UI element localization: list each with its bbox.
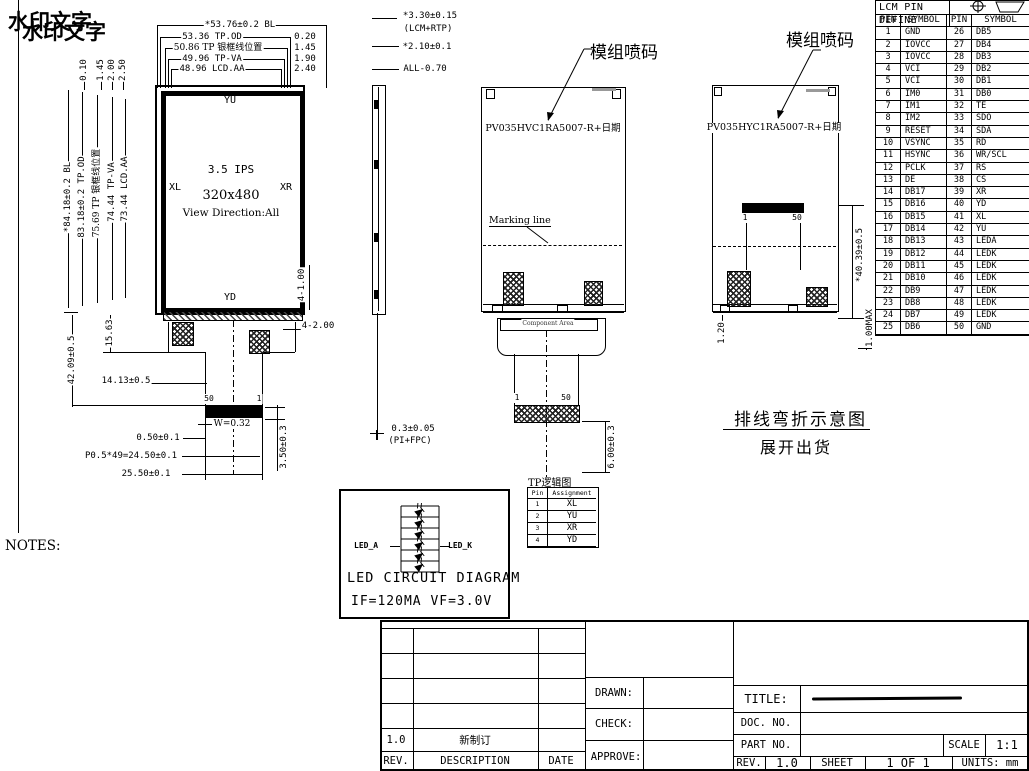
pin-number: 50 [947, 322, 972, 334]
pin-symbol: DB6 [901, 322, 947, 334]
pin-symbol: DB13 [901, 236, 947, 248]
tp-table-body: 1 XL 2 YU 3 XR 4 YD [528, 499, 598, 547]
drawing-line [582, 472, 610, 473]
pin-number: 48 [947, 298, 972, 310]
offset-250: 2.50 [118, 58, 128, 82]
inkjet-code-1: PV035HVC1RA5007-R+日期 [484, 124, 621, 134]
fpc-connector-back1 [514, 405, 580, 423]
tp-assignment-header: Assignment [548, 488, 596, 499]
pin-symbol: DB5 [972, 27, 1029, 39]
pin-number: 19 [876, 249, 901, 261]
drawing-line [205, 418, 206, 480]
dim-lcm-thickness: *2.10±0.1 [402, 42, 453, 52]
pin-table-row: 17 DB14 42 YU [876, 224, 1029, 236]
pin50-label: 50 [203, 394, 215, 404]
drawn-label: DRAWN: [595, 687, 633, 699]
sheet-value: 1 OF 1 [886, 756, 929, 770]
callout-inkjet-1: 模组喷码 [590, 38, 658, 63]
pin-number: 27 [947, 40, 972, 52]
pin-number: 33 [947, 113, 972, 125]
drawing-line [233, 320, 234, 475]
pin-symbol: DB12 [901, 249, 947, 261]
pin-symbol: RESET [901, 126, 947, 138]
pin-symbol: DB14 [901, 224, 947, 236]
drawing-line [284, 59, 285, 88]
pin-number: 16 [876, 212, 901, 224]
pin-table-row: 7 IM1 32 TE [876, 101, 1029, 113]
scale-value: 1:1 [996, 738, 1018, 752]
pin-number: 3 [876, 52, 901, 64]
rev-value-row: 1.0 [387, 734, 406, 746]
pin-symbol: RD [972, 138, 1029, 150]
pin-table-row: 8 IM2 33 SDO [876, 113, 1029, 125]
offset-145: 1.45 [293, 43, 317, 53]
tp-table-row: 1 XL [528, 499, 598, 511]
drawing-line [183, 438, 205, 439]
dim-fpc-thickness: 0.3±0.05 [390, 424, 435, 434]
pin-table-row: 10 VSYNC 35 RD [876, 138, 1029, 150]
drawing-line [283, 329, 301, 330]
pin-symbol: HSYNC [901, 150, 947, 162]
pin-symbol: IM0 [901, 89, 947, 101]
dim-4209: 42.09±0.5 [67, 335, 77, 386]
drawing-line [838, 318, 864, 319]
pin-number: 47 [947, 286, 972, 298]
sheet-label: SHEET [821, 757, 853, 769]
pin-number: 21 [876, 273, 901, 285]
pin-symbol: LEDK [972, 273, 1029, 285]
pin-table-row: 16 DB15 41 XL [876, 212, 1029, 224]
pin-number: 17 [876, 224, 901, 236]
pin-number: 22 [876, 286, 901, 298]
pin-number: 30 [947, 76, 972, 88]
pin-symbol: SDA [972, 126, 1029, 138]
lcm-pin-define-table: LCM PIN DEFINE PIN SYMBOL PIN SYMBOL 1 G… [875, 0, 1029, 336]
pin-table-grid: PIN SYMBOL PIN SYMBOL 1 GND 26 DB5 2 IOV… [876, 15, 1029, 335]
fpc-component-block [172, 322, 194, 346]
pin-number: 38 [947, 175, 972, 187]
drawing-line [372, 18, 397, 19]
dim-total-thickness: *3.30±0.15 [402, 11, 458, 21]
pin-symbol: GND [972, 322, 1029, 334]
dim-1413: 14.13±0.5 [101, 376, 152, 386]
pin-number: 10 [876, 138, 901, 150]
pin-number: 5 [876, 76, 901, 88]
led-anode-label: LED_A [354, 541, 378, 550]
drawing-line [262, 418, 263, 480]
pin-number: 37 [947, 163, 972, 175]
fine-print-mark [806, 89, 830, 92]
pin-number: 14 [876, 187, 901, 199]
pin-symbol: LEDK [972, 286, 1029, 298]
dim-2550: 25.50±0.1 [121, 469, 172, 479]
side-view-profile [372, 85, 386, 315]
pin-table-row: 20 DB11 45 LEDK [876, 261, 1029, 273]
drawing-line [370, 433, 384, 434]
pin-symbol: GND [901, 27, 947, 39]
pin-symbol: DB10 [901, 273, 947, 285]
note-item [5, 656, 350, 676]
drawing-line [605, 421, 606, 472]
strip-pad [788, 305, 798, 313]
side-notch [374, 100, 378, 109]
dim-total-thickness-note: (LCM+RTP) [403, 24, 454, 34]
drawing-line [309, 265, 310, 310]
pin1-label: 1 [256, 394, 263, 404]
drawing-line [160, 37, 161, 88]
pin-number: 4 [876, 64, 901, 76]
pin-table-row: 3 IOVCC 28 DB3 [876, 52, 1029, 64]
tp-pin-header: Pin [528, 488, 548, 499]
pin-symbol: LEDK [972, 261, 1029, 273]
pin-symbol: TE [972, 101, 1029, 113]
dim-fpc-thickness-note: (PI+FPC) [387, 436, 432, 446]
fold-note-title: 排线弯折示意图 [734, 405, 867, 430]
pin-number: 1 [876, 27, 901, 39]
drawing-line [168, 59, 169, 88]
fine-print-mark [592, 88, 616, 91]
pin-table-row: 1 GND 26 DB5 [876, 27, 1029, 39]
dim-pin-width: W=0.32 [213, 419, 252, 429]
pin-symbol: VCI [901, 76, 947, 88]
pin-table-row: 5 VCI 30 DB1 [876, 76, 1029, 88]
pin-number: 44 [947, 249, 972, 261]
pin-symbol: IM2 [901, 113, 947, 125]
drawing-line [326, 25, 327, 88]
pin-number: 20 [876, 261, 901, 273]
doc-no-label: DOC. NO. [741, 717, 792, 729]
dim-lcdaa-height: 73.44 LCD.AA [120, 155, 130, 222]
drawing-line [372, 69, 399, 70]
pin-symbol: XL [972, 212, 1029, 224]
note-item [5, 636, 350, 656]
drawing-line [372, 46, 399, 47]
description-col-header: DESCRIPTION [440, 755, 510, 767]
pin-number: 25 [876, 322, 901, 334]
pin-number: 28 [947, 52, 972, 64]
pin-symbol: DB7 [901, 310, 947, 322]
pin-table-row: 12 PCLK 37 RS [876, 163, 1029, 175]
pin-table-row: 25 DB6 50 GND [876, 322, 1029, 334]
pin-symbol: SDO [972, 113, 1029, 125]
fpc-component-block [249, 330, 270, 354]
offset-010: 0.10 [79, 58, 89, 82]
date-col-header: DATE [548, 755, 573, 767]
units-label: UNITS: mm [962, 757, 1019, 769]
check-label: CHECK: [595, 718, 633, 730]
touch-label-xr: XR [279, 183, 293, 193]
fold-note-subtitle: 展开出货 [760, 434, 832, 458]
pin-table-row: 22 DB9 47 LEDK [876, 286, 1029, 298]
drawing-line [838, 205, 864, 206]
pin-symbol: DB16 [901, 199, 947, 211]
dim-tpod-height: 83.18±0.2 TP.OD [77, 155, 87, 238]
dim-bl-height: *84.18±0.2 BL [63, 161, 73, 233]
tp-pin-number: 3 [528, 523, 548, 535]
rev-value: 1.0 [776, 756, 798, 770]
pin-symbol: RS [972, 163, 1029, 175]
tp-assignment: YU [548, 511, 596, 523]
offset-145b: 1.45 [96, 58, 106, 82]
pin-table-row: 11 HSYNC 36 WR/SCL [876, 150, 1029, 162]
led-diagram-title: LED CIRCUIT DIAGRAM [347, 570, 520, 586]
touch-label-yd: YD [223, 293, 237, 303]
marking-line-label: Marking line [489, 215, 551, 227]
pin-number: 15 [876, 199, 901, 211]
dim-4039: *40.39±0.5 [855, 227, 865, 283]
pin-number: 24 [876, 310, 901, 322]
drawing-line [290, 37, 291, 88]
pin-number: 49 [947, 310, 972, 322]
tp-table-row: 3 XR [528, 523, 598, 535]
dim-tpod-width: 53.36 TP.OD [181, 32, 243, 42]
dim-600: 6.00±0.3 [607, 424, 617, 469]
offset-200: 2.00 [107, 58, 117, 82]
pin-number: 2 [876, 40, 901, 52]
offset-240: 2.40 [293, 64, 317, 74]
pin50-label: 50 [560, 393, 572, 403]
pin-table-row: 15 DB16 40 YD [876, 199, 1029, 211]
pin-number: 26 [947, 27, 972, 39]
touch-label-xl: XL [168, 183, 182, 193]
offset-190: 1.90 [293, 54, 317, 64]
tp-assignment: XR [548, 523, 596, 535]
corner-tab [486, 89, 495, 99]
dim-120: 1.20 [717, 321, 727, 345]
pin-number: 35 [947, 138, 972, 150]
fpc-fold-block [727, 271, 751, 307]
drawing-line [265, 407, 285, 408]
tp-assignment: YD [548, 535, 596, 547]
pin-symbol: VCI [901, 64, 947, 76]
engineering-drawing-sheet: { "watermark": {"line1": "水印文字", "line2"… [0, 0, 1029, 771]
drawing-line [265, 419, 285, 420]
pin-number: 46 [947, 273, 972, 285]
corner-tab [714, 87, 722, 96]
pin-symbol: IM1 [901, 101, 947, 113]
pin-symbol: YU [972, 224, 1029, 236]
part-no-label: PART NO. [741, 739, 792, 751]
fpc-fold-block [503, 272, 524, 306]
pin-table-row: 13 DE 38 CS [876, 175, 1029, 187]
side-notch [374, 233, 378, 242]
notes-list [5, 556, 350, 736]
pin-number: 23 [876, 298, 901, 310]
pin-table-row: 19 DB12 44 LEDK [876, 249, 1029, 261]
drawing-line [377, 313, 378, 433]
rev-label: REV. [736, 757, 761, 769]
pin-number: 43 [947, 236, 972, 248]
pin-symbol: DB17 [901, 187, 947, 199]
drawing-line [64, 312, 78, 313]
pin-symbol: LEDK [972, 249, 1029, 261]
drawing-line [18, 0, 19, 533]
pin-symbol: DB3 [972, 52, 1029, 64]
drawing-line [858, 348, 872, 349]
pin-number: 11 [876, 150, 901, 162]
scale-label: SCALE [948, 739, 980, 751]
drawing-line [713, 312, 837, 313]
drawing-line [157, 25, 158, 88]
callout-inkjet-2: 模组喷码 [786, 26, 854, 51]
pin-table-row: 23 DB8 48 LEDK [876, 298, 1029, 310]
pin-number: 45 [947, 261, 972, 273]
offset-020: 0.20 [293, 32, 317, 42]
dim-holes-vertical: 4-1.00 [297, 268, 307, 303]
drawing-line [165, 48, 166, 88]
note-item [5, 696, 350, 716]
rev-description-row: 新制订 [459, 733, 491, 748]
dim-350: 3.50±0.3 [279, 424, 289, 469]
drawing-line [168, 322, 169, 352]
strip-pad [557, 305, 568, 313]
pin-number: 6 [876, 89, 901, 101]
pin-number: 39 [947, 187, 972, 199]
drawing-line [852, 205, 853, 318]
dim-lcdaa-width: 48.96 LCD.AA [178, 64, 245, 74]
pin-number: 12 [876, 163, 901, 175]
pin-symbol: DB1 [972, 76, 1029, 88]
pin-table-row: 2 IOVCC 27 DB4 [876, 40, 1029, 52]
tp-pin-number: 1 [528, 499, 548, 511]
pin-number: 40 [947, 199, 972, 211]
projection-symbol-icon [968, 1, 1028, 14]
pin-number: 34 [947, 126, 972, 138]
pin-symbol: DB4 [972, 40, 1029, 52]
pin-number: 32 [947, 101, 972, 113]
pin-number: 18 [876, 236, 901, 248]
notes-title: NOTES: [5, 538, 61, 554]
dim-100max: 1.00MAX [865, 308, 875, 348]
drawing-line [150, 383, 207, 384]
pin-number: 42 [947, 224, 972, 236]
pin-symbol: WR/SCL [972, 150, 1029, 162]
pin-table-body: 1 GND 26 DB5 2 IOVCC 27 DB4 3 IOVCC 28 D… [876, 27, 1029, 334]
pin-col-header: PIN [947, 15, 972, 27]
rev-col-header: REV. [383, 755, 408, 767]
tp-table-header: Pin Assignment [528, 488, 598, 499]
touch-label-yu: YU [223, 96, 237, 106]
pin-symbol: LEDK [972, 298, 1029, 310]
tp-table-row: 4 YD [528, 535, 598, 547]
pin-number: 41 [947, 212, 972, 224]
dim-tpva-height: 74.44 TP-VA [107, 161, 117, 223]
tp-logic-table: Pin Assignment 1 XL 2 YU 3 XR 4 YD [527, 487, 599, 548]
dim-1563: 15.63 [105, 318, 115, 347]
tp-pin-number: 2 [528, 511, 548, 523]
pin-symbol: DB15 [901, 212, 947, 224]
panel-size-label: 3.5 IPS [207, 165, 255, 175]
pin-symbol: LEDK [972, 310, 1029, 322]
pin-table-row: 18 DB13 43 LEDA [876, 236, 1029, 248]
pin-table-row: 21 DB10 46 LEDK [876, 273, 1029, 285]
pin1-label: 1 [742, 213, 749, 223]
note-item [5, 576, 350, 596]
pin-number: 13 [876, 175, 901, 187]
note-item [5, 556, 350, 576]
note-item [5, 716, 350, 736]
tp-table-row: 2 YU [528, 511, 598, 523]
drawing-line [168, 352, 205, 353]
drawing-line [578, 354, 579, 405]
pin-symbol: XR [972, 187, 1029, 199]
drawing-line [182, 474, 262, 475]
pin-symbol: PCLK [901, 163, 947, 175]
note-item [5, 596, 350, 616]
drawing-line [287, 48, 288, 88]
pin50-label: 50 [791, 213, 803, 223]
fpc-connector-back2 [742, 203, 804, 213]
pin-symbol: DB8 [901, 298, 947, 310]
dim-all-thickness: ALL-0.70 [402, 64, 447, 74]
pin-table-row: 9 RESET 34 SDA [876, 126, 1029, 138]
tp-pin-number: 4 [528, 535, 548, 547]
side-notch [374, 160, 378, 169]
pin-table-title: LCM PIN DEFINE [876, 1, 950, 27]
pin-number: 29 [947, 64, 972, 76]
pin-number: 31 [947, 89, 972, 101]
dim-frameline-height: 75.69 TP 银框线位置 [92, 148, 102, 239]
pin-table-row: 14 DB17 39 XR [876, 187, 1029, 199]
dim-frameline-width: 50.86 TP 银框线位置 [173, 43, 264, 53]
pin-symbol: CS [972, 175, 1029, 187]
pin-symbol: DB11 [901, 261, 947, 273]
approve-label: APPROVE: [591, 751, 642, 763]
fpc-connector-front [205, 405, 263, 418]
view-direction-label: View Direction:All [182, 208, 281, 218]
drawing-line [72, 405, 205, 406]
pin-number: 7 [876, 101, 901, 113]
pin-number: 9 [876, 126, 901, 138]
pin-symbol: DB9 [901, 286, 947, 298]
pin-symbol: IOVCC [901, 52, 947, 64]
panel-resolution-label: 320x480 [202, 191, 261, 201]
pin-symbol: DB0 [972, 89, 1029, 101]
dim-050: 0.50±0.1 [135, 433, 180, 443]
fpc-fold-block [584, 281, 603, 306]
pin-table-row: 6 IM0 31 DB0 [876, 89, 1029, 101]
backlight-hatch-strip [163, 311, 303, 321]
pin-symbol: IOVCC [901, 40, 947, 52]
led-cathode-label: LED_K [448, 541, 472, 550]
title-label: TITLE: [744, 692, 787, 706]
watermark-text: 水印文字 [22, 16, 106, 46]
component-area-label: Component Area [521, 319, 574, 329]
strip-pad [720, 305, 730, 313]
side-notch [374, 290, 378, 299]
dim-pitch: P0.5*49=24.50±0.1 [84, 451, 178, 461]
drawing-line [182, 456, 260, 457]
pin-number: 8 [876, 113, 901, 125]
led-diagram-spec: IF=120MA VF=3.0V [351, 594, 492, 609]
pin-table-row: 24 DB7 49 LEDK [876, 310, 1029, 322]
pin1-label: 1 [514, 393, 521, 403]
pin-symbol: DE [901, 175, 947, 187]
tp-assignment: XL [548, 499, 596, 511]
drawing-line [277, 405, 278, 471]
dim-tpva-width: 49.96 TP-VA [181, 54, 243, 64]
led-ladder-figure [398, 503, 442, 575]
note-item [5, 676, 350, 696]
note-item [5, 616, 350, 636]
dim-holes-horizontal: 4-2.00 [301, 321, 336, 331]
drawing-line [483, 312, 624, 313]
strip-pad [492, 305, 503, 313]
fpc-fold-block [806, 287, 828, 307]
symbol-col-header: SYMBOL [972, 15, 1029, 27]
pin-symbol: DB2 [972, 64, 1029, 76]
pin-symbol: LEDA [972, 236, 1029, 248]
